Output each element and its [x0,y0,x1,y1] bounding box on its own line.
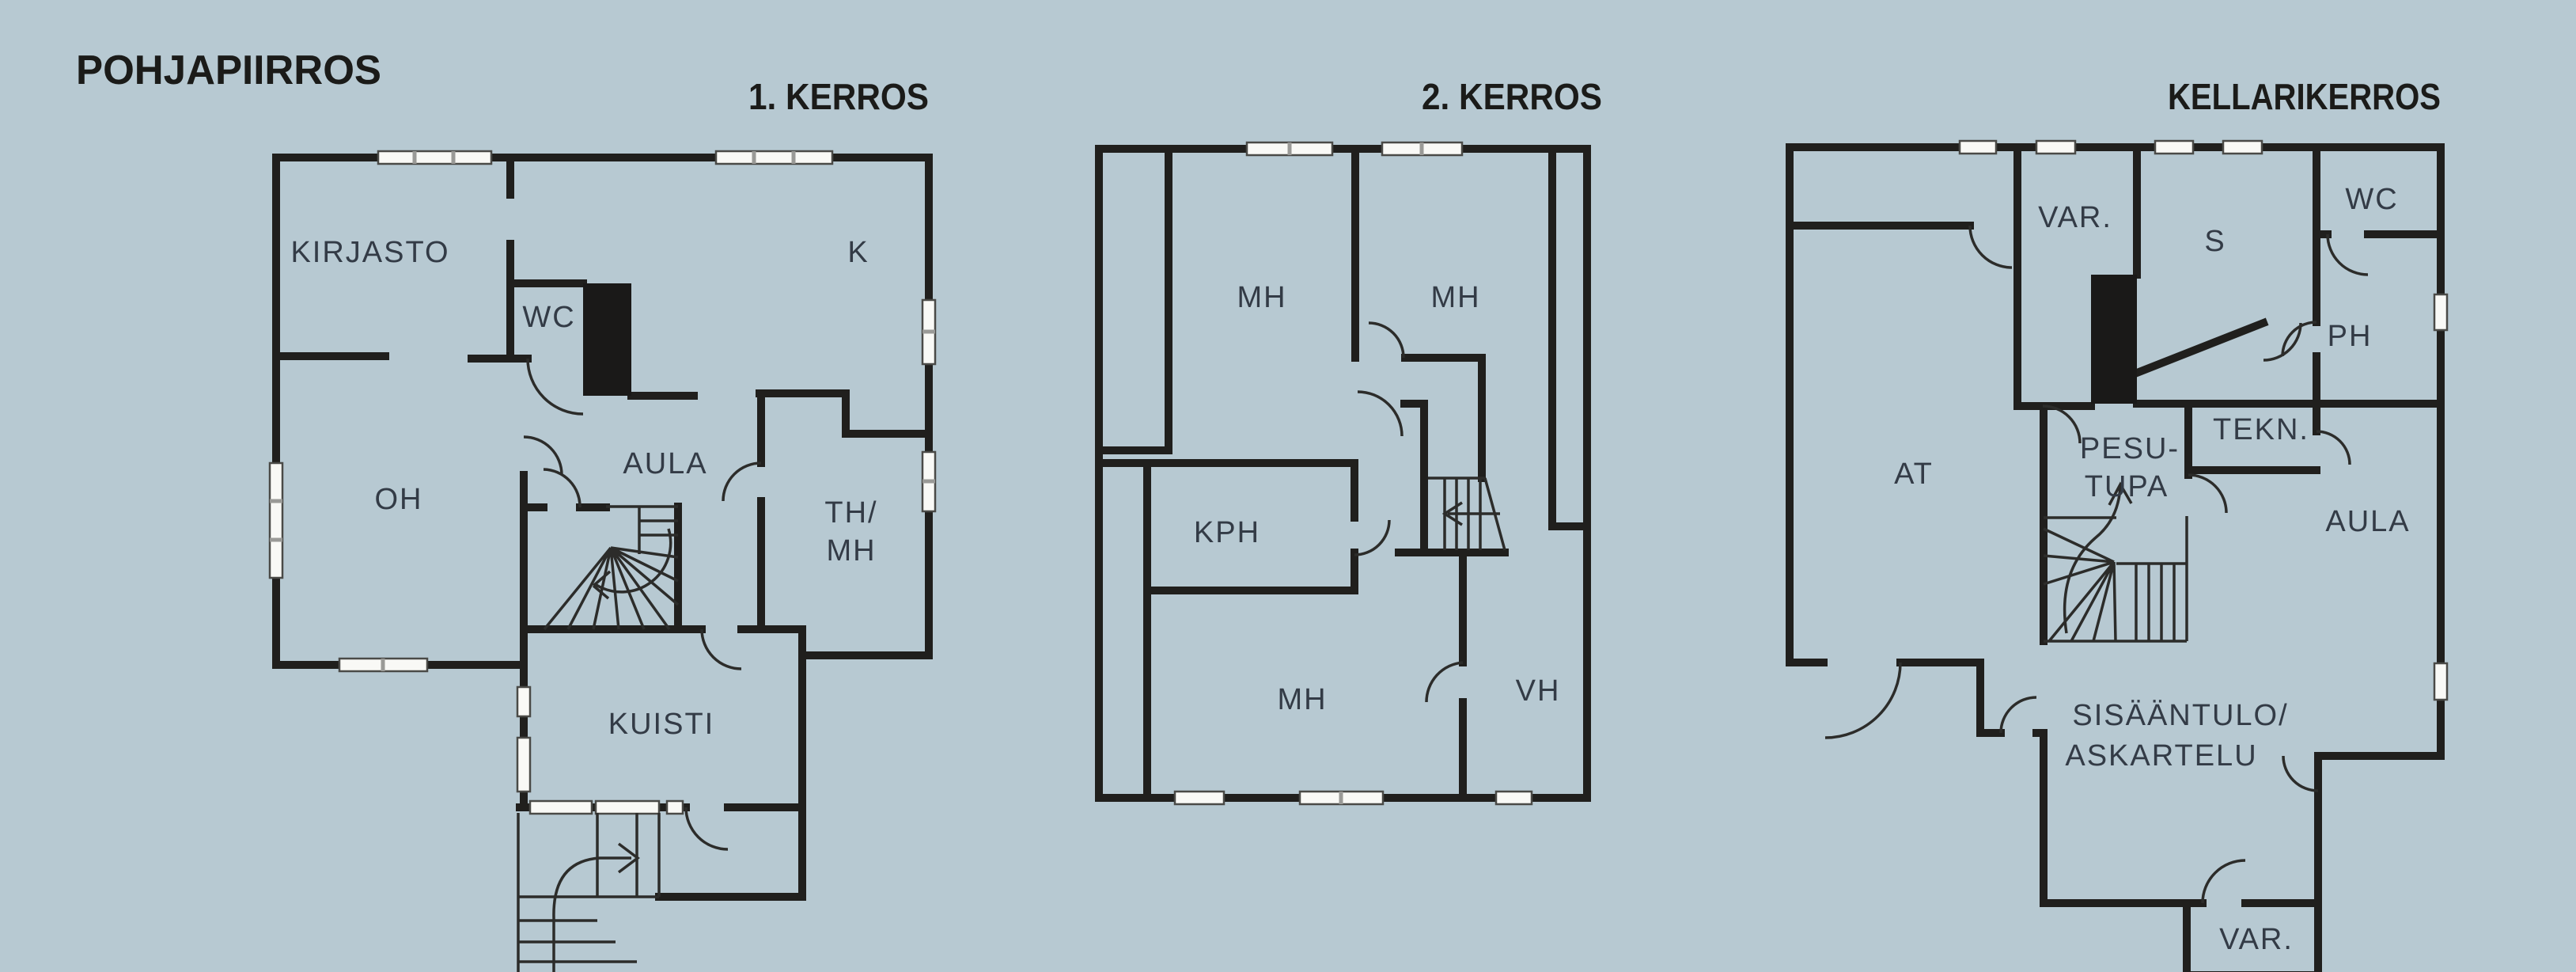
door-arc [702,629,741,669]
door-arc [2203,860,2245,903]
door-arc [1354,520,1389,555]
chimney-basement [2091,275,2137,404]
drawing-title: POHJAPIIRROS [76,47,381,93]
window [2223,141,2262,154]
room-label-k: K [847,236,869,269]
floor-plan-drawing: POHJAPIIRROS 1. KERROS 2. KERROS KELLARI… [0,0,2576,972]
room-label-tekn: TEKN. [2213,413,2309,446]
window [1496,792,1532,804]
room-label-var1: VAR. [2038,201,2112,234]
room-label-var2: VAR. [2219,923,2294,956]
window [1960,141,1996,154]
door-arc [1369,323,1404,358]
floor-plan-page: POHJAPIIRROS 1. KERROS 2. KERROS KELLARI… [0,0,2576,972]
window [530,801,592,814]
floor-plan-basement: VAR. S WC PH AT PESU- TUPA TEKN. AULA SI… [1790,141,2447,972]
room-label-at: AT [1894,458,1934,491]
room-label-mh2: MH [1430,281,1480,314]
door-arc [2328,234,2368,275]
room-label-wc: WC [2345,183,2398,216]
floor2-room-labels: MH MH KPH MH VH [1194,281,1560,716]
exterior-stair-treads [518,813,659,972]
window [1175,792,1224,804]
room-label-mh3: MH [1277,683,1327,716]
window [2155,141,2193,154]
floor1-door-arcs [524,359,761,849]
door-arc [544,469,580,507]
window [2434,294,2447,330]
window [378,151,491,164]
door-arc [524,437,562,475]
room-label-th-mh-line1: TH/ [824,496,877,530]
door-arc [1970,226,2012,268]
room-label-oh: OH [375,483,423,516]
window [596,801,659,814]
room-label-aula: AULA [623,447,707,480]
floor1-staircase [544,507,678,629]
floor1-exterior-stairs [518,813,659,972]
floor-title-1: 1. KERROS [748,76,929,117]
entry-direction-arrow [554,844,638,972]
window [2036,141,2075,154]
basement-room-labels: VAR. S WC PH AT PESU- TUPA TEKN. AULA SI… [1894,183,2411,956]
room-label-pesutupa-line1: PESU- [2080,432,2180,465]
floor-plan-first-floor: KIRJASTO K WC AULA OH TH/ MH KUISTI [270,151,935,972]
window [716,151,832,164]
room-label-sisaantulo-line1: SISÄÄNTULO/ [2072,699,2288,732]
room-label-kph: KPH [1194,516,1260,549]
room-label-kirjasto: KIRJASTO [290,236,449,269]
door-arc [686,807,728,849]
room-label-wc: WC [522,301,575,334]
door-arc [2001,697,2036,733]
window [2434,663,2447,700]
door-arc [1426,663,1463,702]
door-arc [528,359,583,414]
basement-outer-walls [1790,147,2441,972]
room-label-sisaantulo-line2: ASKARTELU [2065,739,2257,773]
basement-windows [1960,141,2447,700]
floor-plan-second-floor: MH MH KPH MH VH [1099,142,1587,804]
room-label-mh1: MH [1237,281,1286,314]
door-arc [2188,475,2226,513]
window [517,687,530,716]
room-label-s: S [2204,225,2226,258]
room-label-pesutupa-line2: TUPA [2085,470,2169,503]
door-arc [1358,392,1402,436]
stair-treads [544,507,678,629]
window [667,801,683,814]
floor-title-2: 2. KERROS [1422,76,1602,117]
basement-staircase [2044,484,2187,641]
door-arc [2283,756,2318,791]
door-arc [723,463,761,501]
room-label-aula: AULA [2325,505,2410,538]
room-label-vh: VH [1516,674,1561,708]
floor2-staircase [1428,478,1505,550]
window [517,738,530,792]
door-arc [2317,431,2350,465]
floor2-interior-walls [1099,149,1587,798]
door-arc [2043,406,2080,443]
garage-door-arc [1825,663,1900,738]
room-label-th-mh-line2: MH [826,534,876,568]
room-label-ph: PH [2328,320,2373,353]
window [270,463,282,578]
chimney-floor1 [583,283,631,396]
room-label-kuisti: KUISTI [608,708,714,741]
floor-title-basement: KELLARIKERROS [2168,76,2441,117]
